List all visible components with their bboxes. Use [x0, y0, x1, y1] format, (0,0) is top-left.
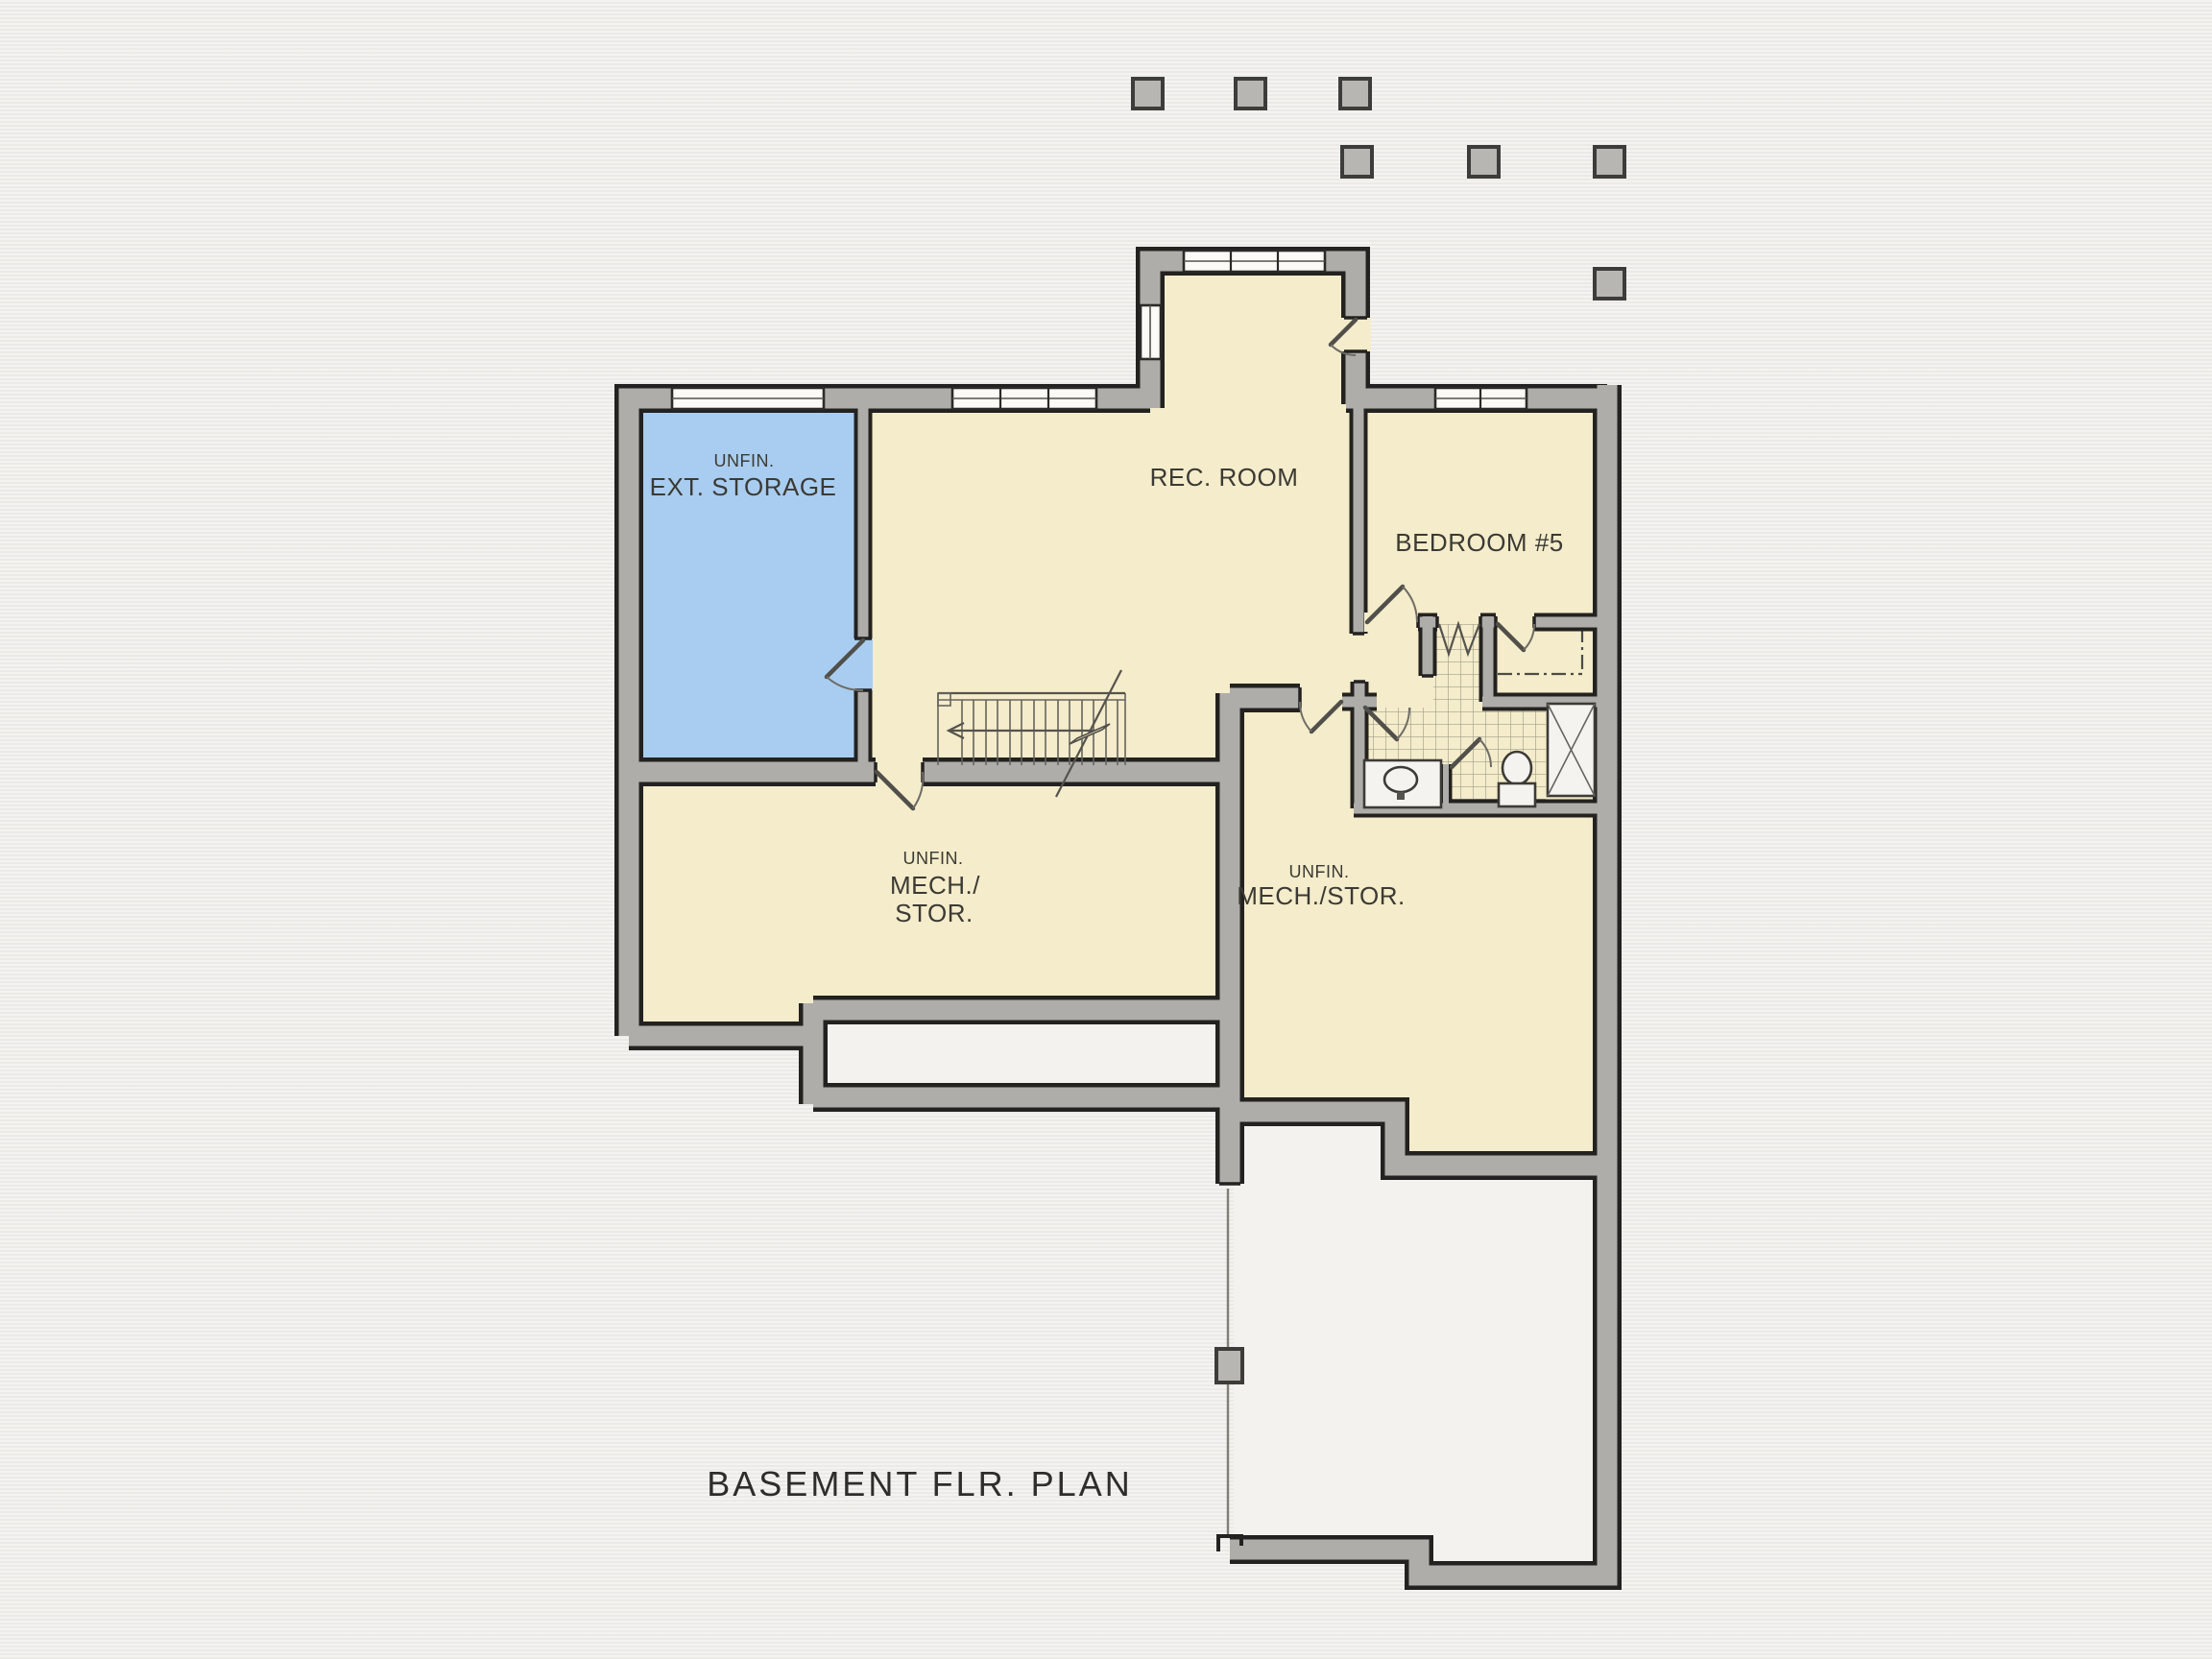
mech-left-label-line1: MECH./	[890, 873, 980, 898]
deck-post	[1340, 79, 1370, 108]
bedroom-window-symbol	[1435, 388, 1527, 409]
shower	[1548, 704, 1595, 796]
storage-window-symbol	[672, 388, 824, 409]
deck-post	[1236, 79, 1265, 108]
ext-storage-label-prefix: UNFIN.	[714, 452, 775, 469]
mech-left-label-prefix: UNFIN.	[903, 850, 964, 867]
deck-post	[1342, 147, 1372, 177]
rec-room-window-symbol	[952, 388, 1096, 409]
deck-post	[1595, 269, 1624, 299]
deck-post	[1595, 147, 1624, 177]
floor-plan-drawing	[0, 0, 2212, 1659]
bay-window-symbol	[1184, 251, 1325, 272]
plan-title: BASEMENT FLR. PLAN	[707, 1467, 1132, 1502]
vanity-sink	[1364, 760, 1441, 807]
mech-right-label: MECH./STOR.	[1237, 883, 1405, 908]
deck-post	[1469, 147, 1499, 177]
deck-post	[1133, 79, 1163, 108]
rec-room-label: REC. ROOM	[1150, 465, 1299, 490]
floor-plan-page: UNFIN. EXT. STORAGE REC. ROOM BEDROOM #5…	[0, 0, 2212, 1659]
bay-side-window-symbol	[1141, 305, 1161, 359]
bedroom-5-label: BEDROOM #5	[1395, 530, 1564, 555]
mech-right-label-prefix: UNFIN.	[1289, 863, 1350, 880]
ext-storage-label: EXT. STORAGE	[650, 474, 837, 499]
mech-left-label-line2: STOR.	[895, 901, 973, 926]
patio-unexcavated-area	[1234, 1114, 1603, 1572]
patio-post	[1216, 1349, 1242, 1382]
